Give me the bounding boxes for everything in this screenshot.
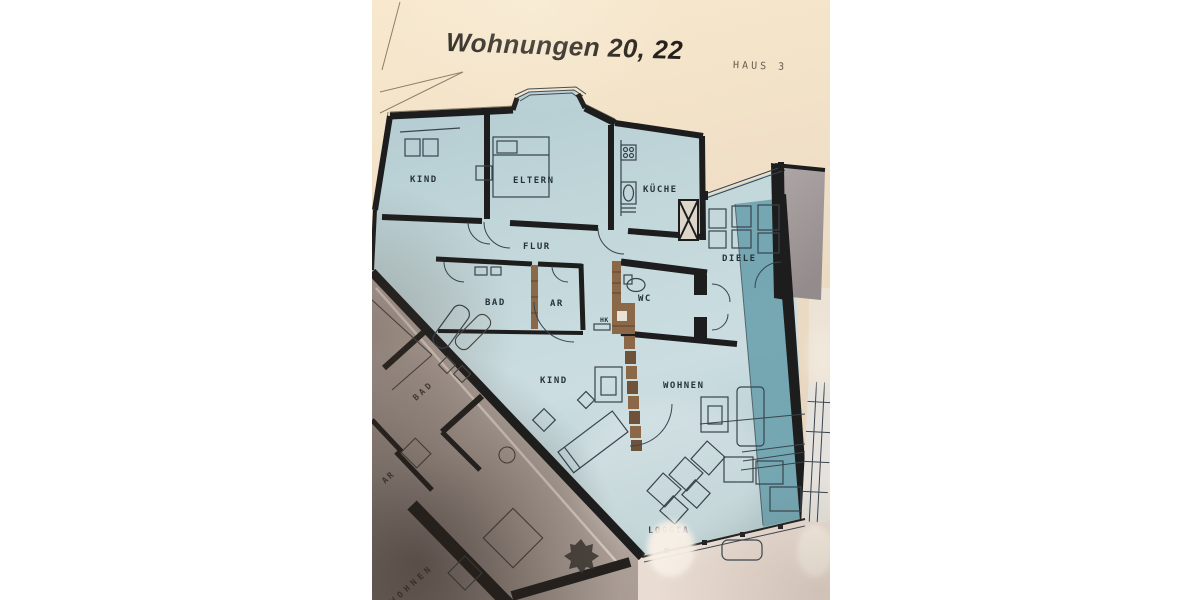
screenshot-canvas: Wohnungen 20, 22 HAUS 3 bbox=[0, 0, 1200, 600]
label-kind-bottom: KIND bbox=[540, 376, 568, 386]
floor-plan-photo: Wohnungen 20, 22 HAUS 3 bbox=[372, 0, 830, 600]
label-wohnen: WOHNEN bbox=[663, 381, 705, 391]
label-flur: FLUR bbox=[523, 242, 551, 252]
label-kind-top: KIND bbox=[410, 175, 438, 185]
label-diele: DIELE bbox=[722, 254, 757, 264]
building-label: HAUS 3 bbox=[733, 60, 787, 73]
floor-plan-drawing: KIND ELTERN KÜCHE FLUR BAD AR WC HK DIEL… bbox=[372, 0, 830, 600]
glare-spot-left bbox=[647, 521, 695, 577]
shaft-symbol bbox=[679, 200, 698, 240]
label-eltern: ELTERN bbox=[513, 176, 555, 186]
label-wc: WC bbox=[638, 294, 652, 304]
label-ar: AR bbox=[550, 299, 564, 309]
window-grid-panel bbox=[801, 381, 830, 522]
label-kueche: KÜCHE bbox=[643, 184, 678, 195]
label-hk: HK bbox=[600, 316, 609, 324]
label-bad: BAD bbox=[485, 298, 506, 308]
